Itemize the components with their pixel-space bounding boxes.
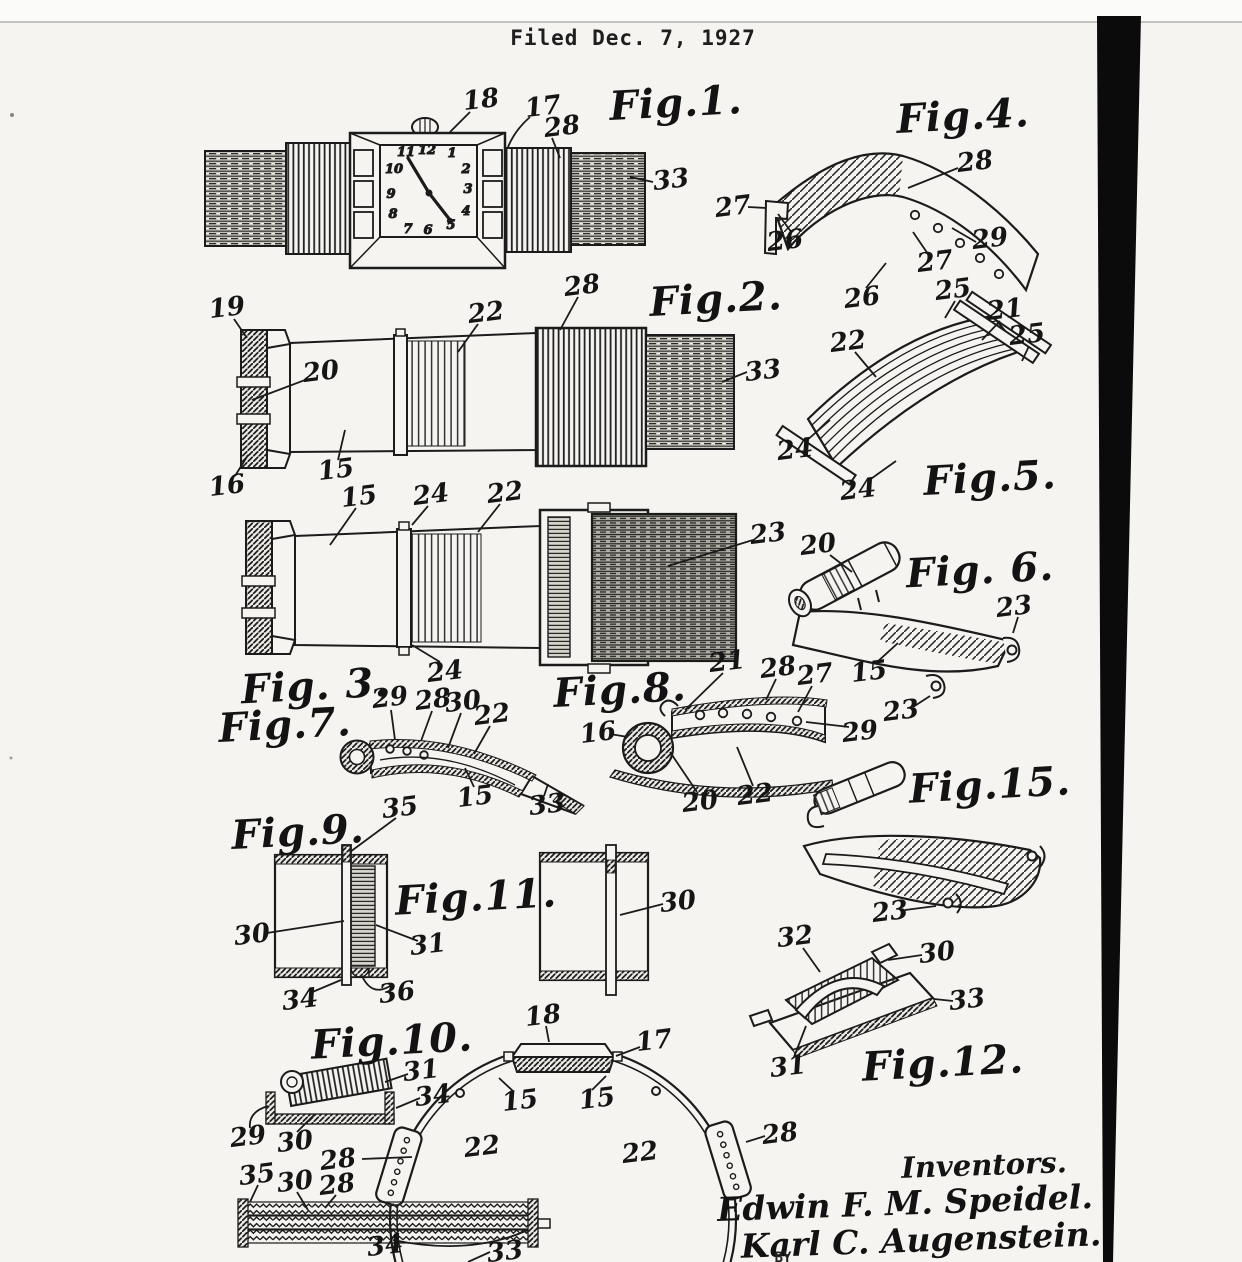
- dial-number-5: 5: [446, 218, 455, 233]
- figure-12-drawing: [750, 944, 937, 1058]
- figure-8-drawing: [610, 697, 833, 797]
- scan-speck: [10, 757, 13, 760]
- figure-5-drawing: [777, 289, 1051, 484]
- figure-9-drawing: [275, 845, 387, 985]
- figure-7-drawing: [341, 739, 585, 814]
- patent-drawing-canvas: 121234567891011: [0, 0, 1242, 1262]
- scan-black-bar: [1097, 16, 1141, 1262]
- dial-number-6: 6: [423, 223, 432, 238]
- dial-number-7: 7: [403, 222, 412, 237]
- patent-sheet: Filed Dec. 7, 1927: [0, 0, 1242, 1262]
- figure-1-drawing: 121234567891011: [205, 118, 645, 268]
- dial-number-9: 9: [386, 187, 395, 202]
- figure-15-drawing: [804, 759, 1045, 913]
- dial-number-12: 12: [418, 143, 436, 158]
- figure-3-drawing: [242, 503, 736, 673]
- dial-number-8: 8: [388, 207, 397, 222]
- dial-number-10: 10: [385, 162, 403, 177]
- figure-6-drawing: [785, 537, 1020, 698]
- dial-number-1: 1: [447, 146, 456, 161]
- dial-number-2: 2: [460, 162, 470, 177]
- dial-number-3: 3: [463, 182, 472, 197]
- figure-11-drawing: [540, 845, 648, 995]
- figure-2-drawing: [237, 328, 734, 468]
- figure-10-detail-channel: [266, 1059, 394, 1124]
- scan-speck: [10, 113, 14, 117]
- dial-number-4: 4: [461, 204, 470, 219]
- figure-4-drawing: [765, 153, 1038, 290]
- dial-number-11: 11: [397, 145, 415, 160]
